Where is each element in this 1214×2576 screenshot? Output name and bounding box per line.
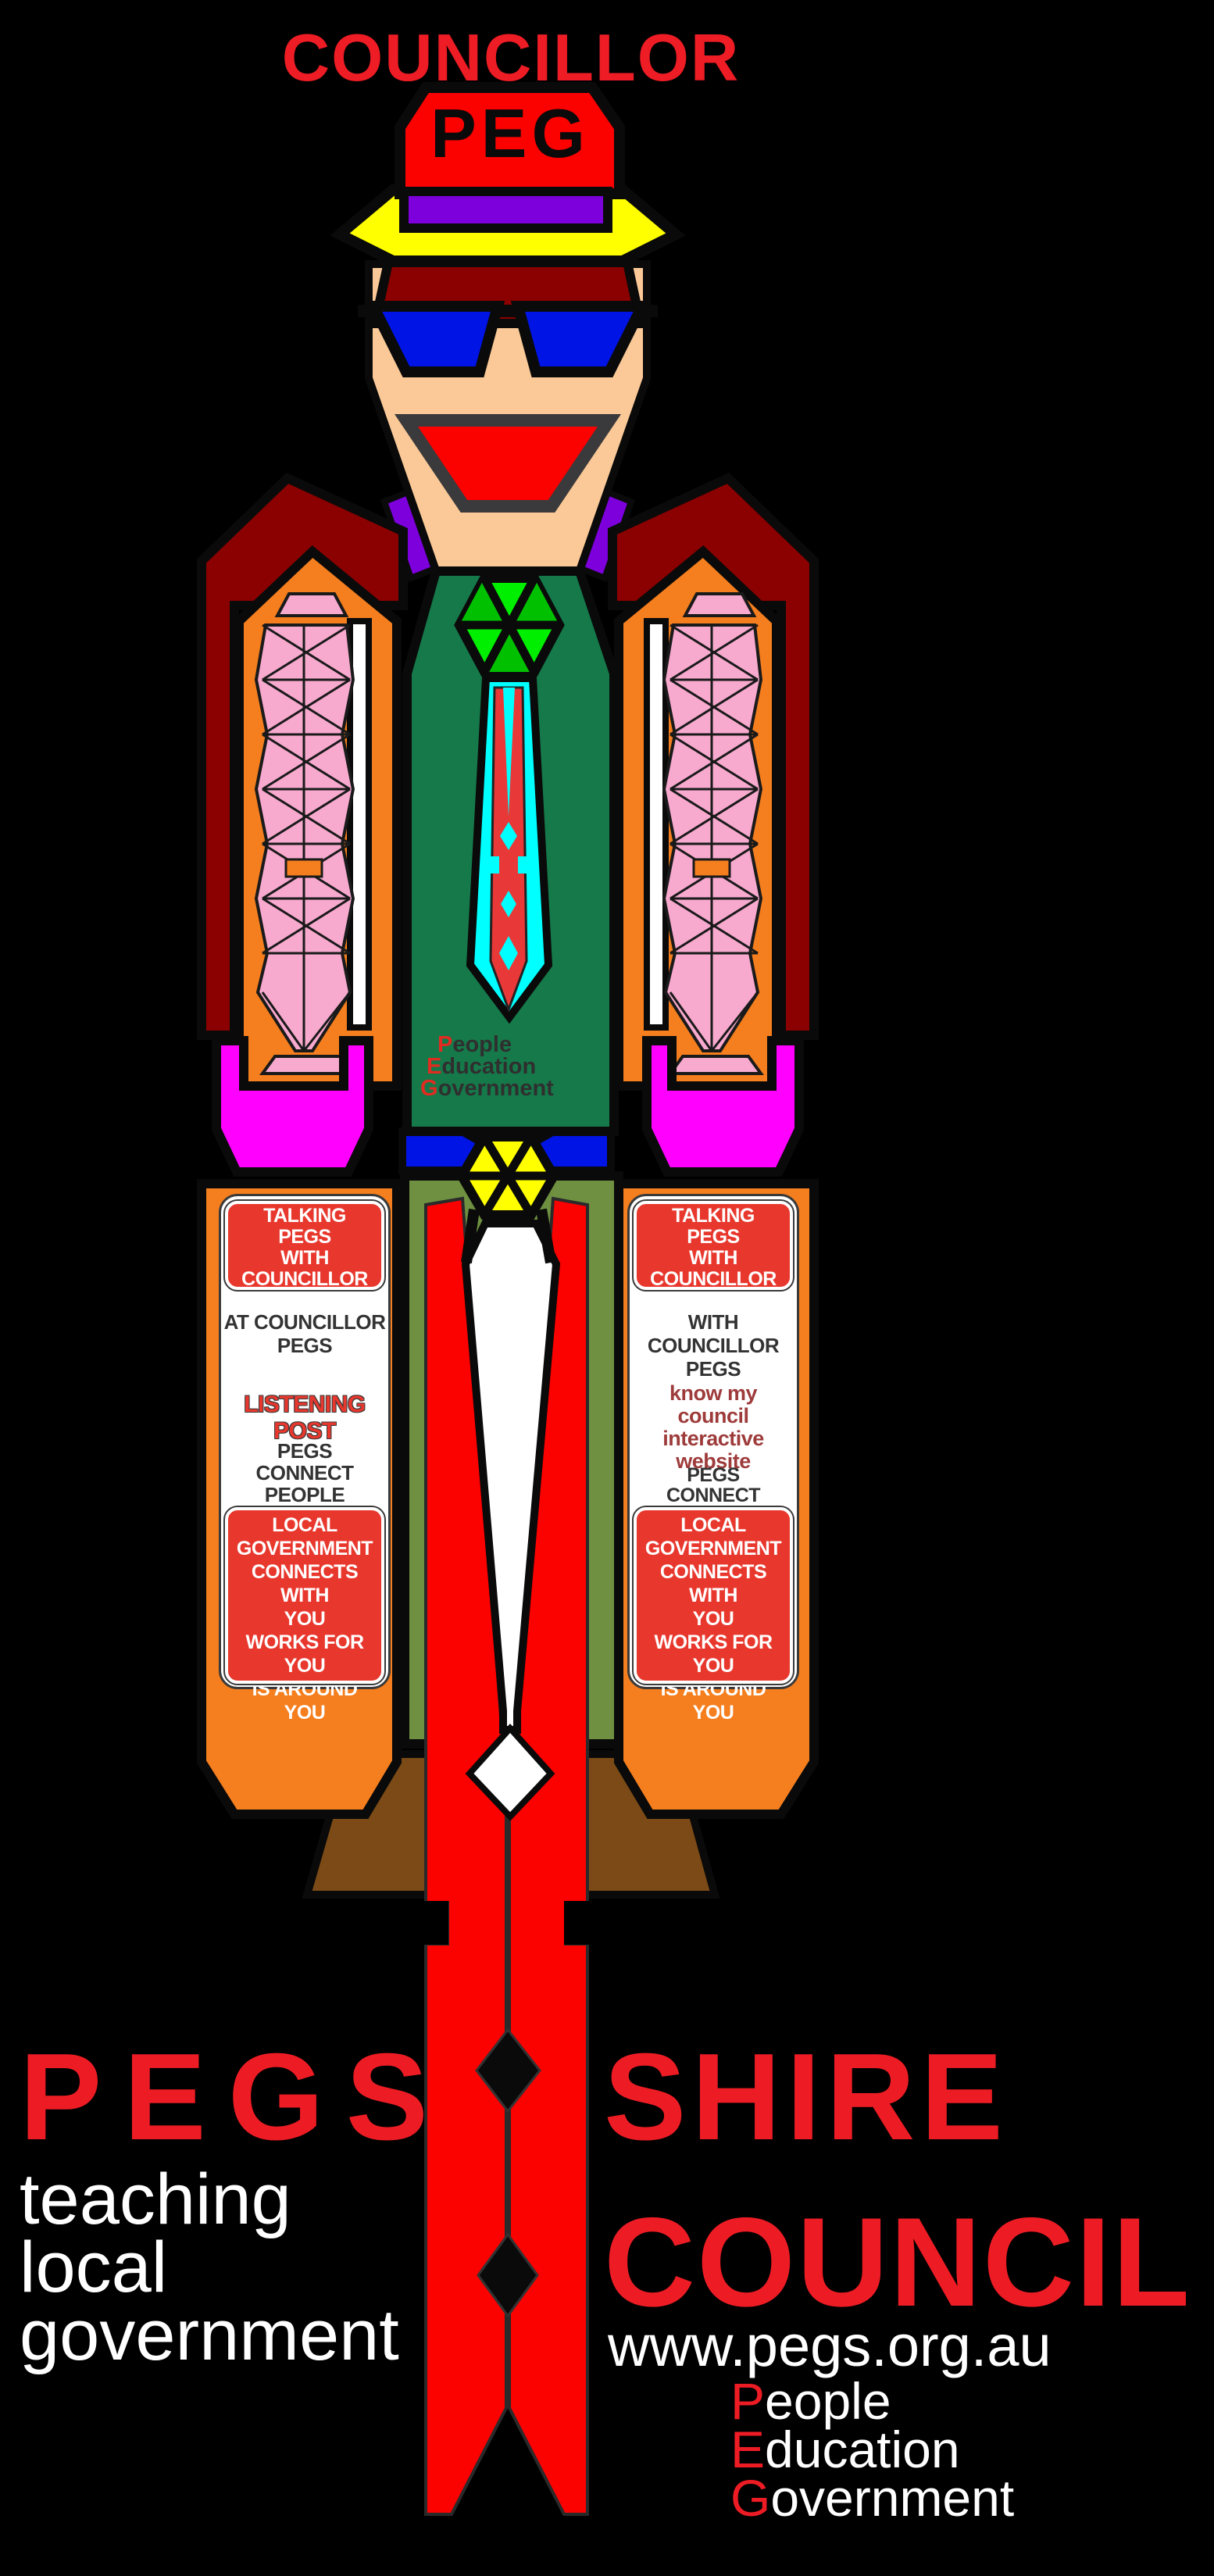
left-panel-highlight: LISTENING POST	[221, 1392, 388, 1445]
poster-councillor-peg: { "title": "COUNCILLOR", "hat": { "label…	[0, 0, 1214, 2576]
left-panel-footer: LOCAL GOVERNMENT CONNECTS WITH YOU WORKS…	[225, 1507, 384, 1684]
bottom-acronym-line: People	[730, 2377, 1014, 2425]
peg-notch-left	[422, 1901, 448, 1945]
bottom-acronym-line: Government	[730, 2474, 1014, 2522]
torso-acronym: People Education Government	[437, 1034, 609, 1099]
right-panel-body-top: WITH COUNCILLOR PEGS	[630, 1310, 797, 1381]
bottom-acronym-line: Education	[730, 2425, 1014, 2474]
poster-title: COUNCILLOR	[234, 20, 787, 97]
torso-acronym-line: Education	[427, 1056, 609, 1077]
torso-acronym-line: People	[437, 1034, 609, 1056]
tagline: teaching local government	[20, 2166, 399, 2370]
right-panel-header: TALKING PEGS WITH COUNCILLOR PEG	[634, 1201, 793, 1290]
brand-council: COUNCIL	[604, 2199, 1191, 2326]
left-info-panel: TALKING PEGS WITH COUNCILLOR PEG AT COUN…	[219, 1194, 391, 1689]
torso-acronym-line: Government	[420, 1077, 609, 1099]
left-panel-body-top: AT COUNCILLOR PEGS	[221, 1310, 388, 1357]
left-panel-body-bottom: PEGS CONNECT PEOPLE	[221, 1440, 388, 1506]
hat-label: PEG	[391, 94, 630, 173]
peg-notch-right	[564, 1901, 591, 1945]
brand-pegs: PEGS	[20, 2035, 450, 2159]
brand-shire: SHIRE	[604, 2035, 1009, 2159]
hat-band-purple	[404, 191, 608, 228]
right-panel-highlight: know my council interactive website	[630, 1382, 797, 1473]
right-info-panel: TALKING PEGS WITH COUNCILLOR PEG WITH CO…	[627, 1194, 799, 1689]
website-url: www.pegs.org.au	[608, 2313, 1052, 2379]
green-bow	[459, 578, 559, 672]
doily-peg	[256, 594, 353, 1074]
bottom-acronym: People Education Government	[730, 2377, 1014, 2522]
tie	[470, 678, 548, 1017]
right-panel-footer: LOCAL GOVERNMENT CONNECTS WITH YOU WORKS…	[634, 1507, 793, 1684]
right-arm-white-stripe	[647, 621, 666, 1027]
left-panel-header: TALKING PEGS WITH COUNCILLOR PEG	[225, 1201, 384, 1290]
